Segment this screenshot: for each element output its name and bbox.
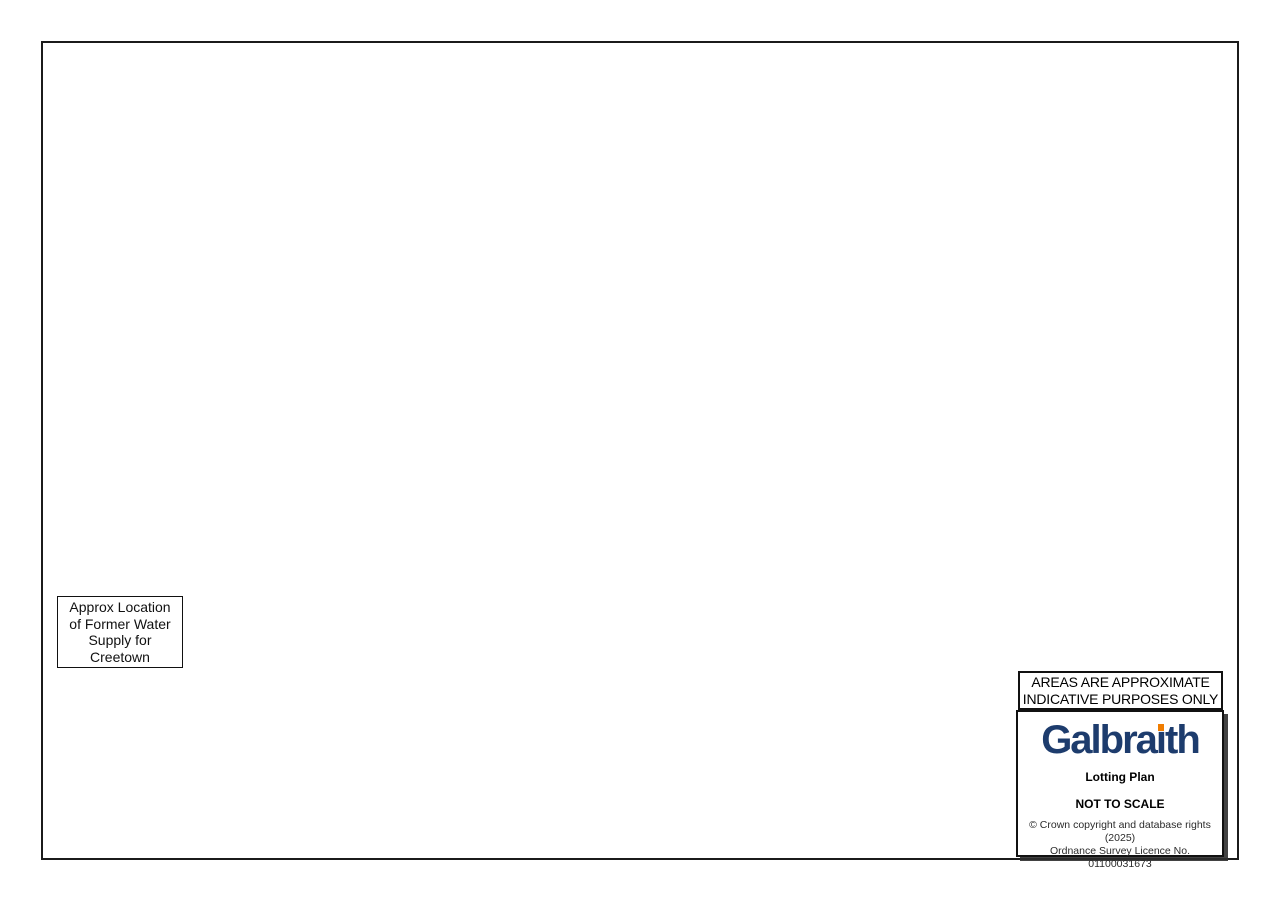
copyright-note: © Crown copyright and database rights (2… — [1018, 819, 1222, 871]
title-block: Galbraıth Lotting Plan NOT TO SCALE © Cr… — [1016, 710, 1224, 857]
callout-line: of Former Water — [69, 616, 170, 633]
disclaimer-line: INDICATIVE PURPOSES ONLY — [1023, 691, 1218, 708]
water-supply-callout: Approx Location of Former Water Supply f… — [57, 596, 183, 668]
copyright-line: © Crown copyright and database rights (2… — [1018, 819, 1222, 845]
callout-line: Creetown — [90, 649, 150, 666]
disclaimer-line: AREAS ARE APPROXIMATE — [1031, 674, 1209, 691]
logo-text: th — [1165, 718, 1199, 762]
areas-disclaimer-box: AREAS ARE APPROXIMATE INDICATIVE PURPOSE… — [1018, 671, 1223, 710]
plan-type-label: Lotting Plan — [1085, 770, 1154, 784]
scale-note: NOT TO SCALE — [1075, 797, 1164, 811]
copyright-line: Ordnance Survey Licence No. 01100031673 — [1018, 845, 1222, 871]
logo-i: ı — [1156, 718, 1165, 762]
callout-line: Supply for — [88, 632, 151, 649]
galbraith-logo: Galbraıth — [1041, 718, 1199, 762]
callout-line: Approx Location — [69, 599, 170, 616]
lotting-plan-page: Knockwar Hill148mMark Cottage138mThorny … — [0, 0, 1280, 905]
logo-text: Galbra — [1041, 718, 1156, 762]
logo-orange-dot-icon — [1158, 724, 1165, 731]
